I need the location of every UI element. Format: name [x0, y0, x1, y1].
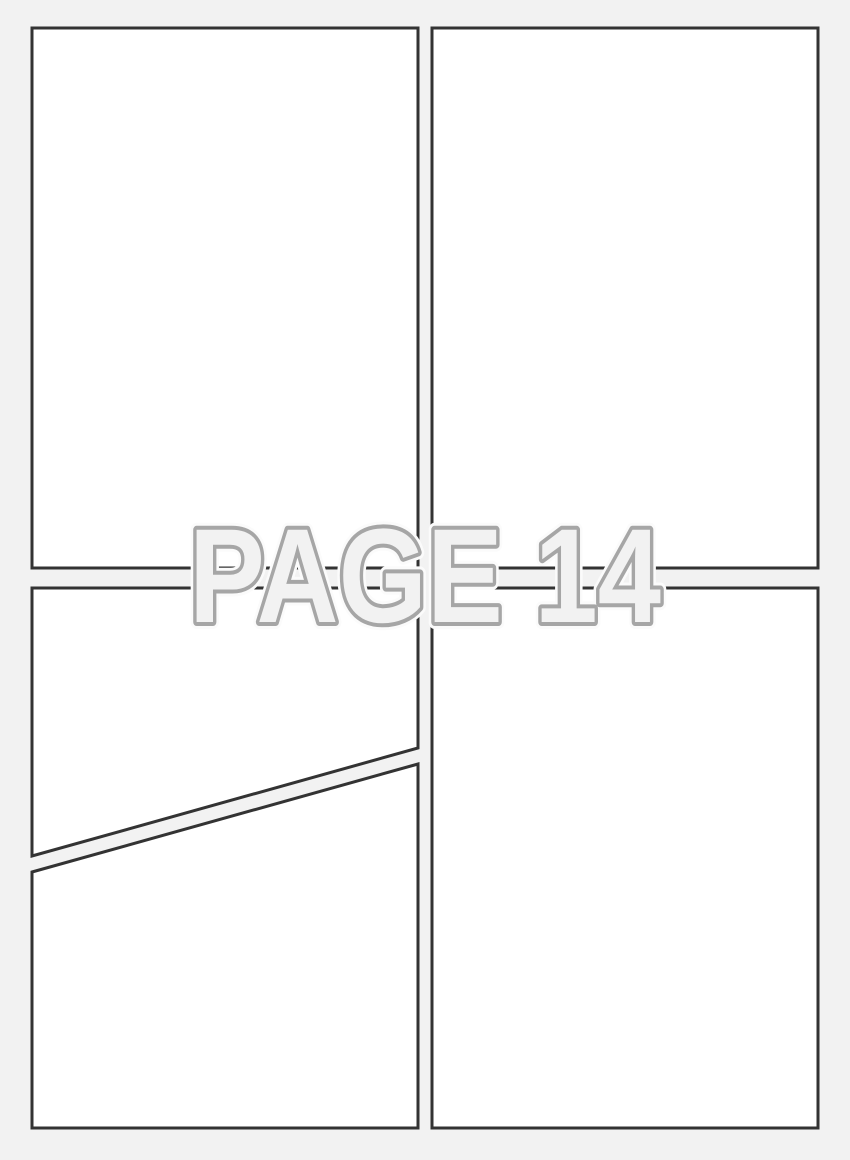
- comic-page-svg: PAGE 14 PAGE 14: [0, 0, 850, 1160]
- comic-page-template: PAGE 14 PAGE 14: [0, 0, 850, 1160]
- page-number-text: PAGE 14: [189, 502, 661, 651]
- panel-bottom-right: [432, 588, 818, 1128]
- panel-top-right: [432, 28, 818, 568]
- panel-top-left: [32, 28, 418, 568]
- page-number-watermark: PAGE 14 PAGE 14: [189, 502, 661, 651]
